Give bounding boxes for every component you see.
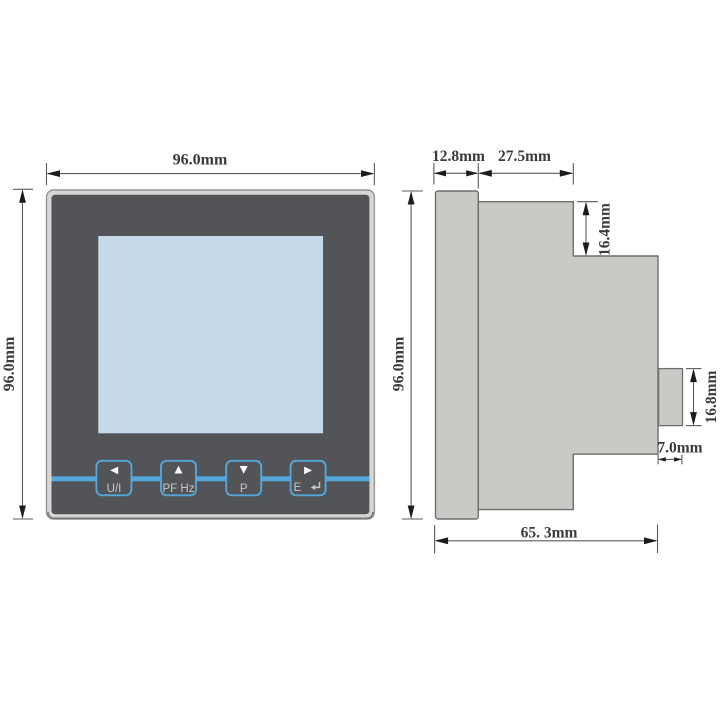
svg-text:12.8mm: 12.8mm	[432, 148, 485, 165]
svg-text:65. 3mm: 65. 3mm	[521, 525, 578, 542]
svg-text:U/I: U/I	[107, 483, 122, 495]
svg-text:E: E	[294, 482, 302, 494]
svg-text:16.8mm: 16.8mm	[703, 370, 720, 423]
svg-text:PF Hz: PF Hz	[163, 483, 195, 495]
svg-text:96.0mm: 96.0mm	[391, 336, 408, 391]
svg-text:96.0mm: 96.0mm	[1, 336, 18, 391]
svg-text:P: P	[240, 483, 248, 495]
svg-text:7.0mm: 7.0mm	[657, 440, 702, 457]
svg-text:27.5mm: 27.5mm	[498, 148, 551, 165]
svg-text:96.0mm: 96.0mm	[173, 152, 228, 169]
svg-text:16.4mm: 16.4mm	[597, 203, 614, 256]
